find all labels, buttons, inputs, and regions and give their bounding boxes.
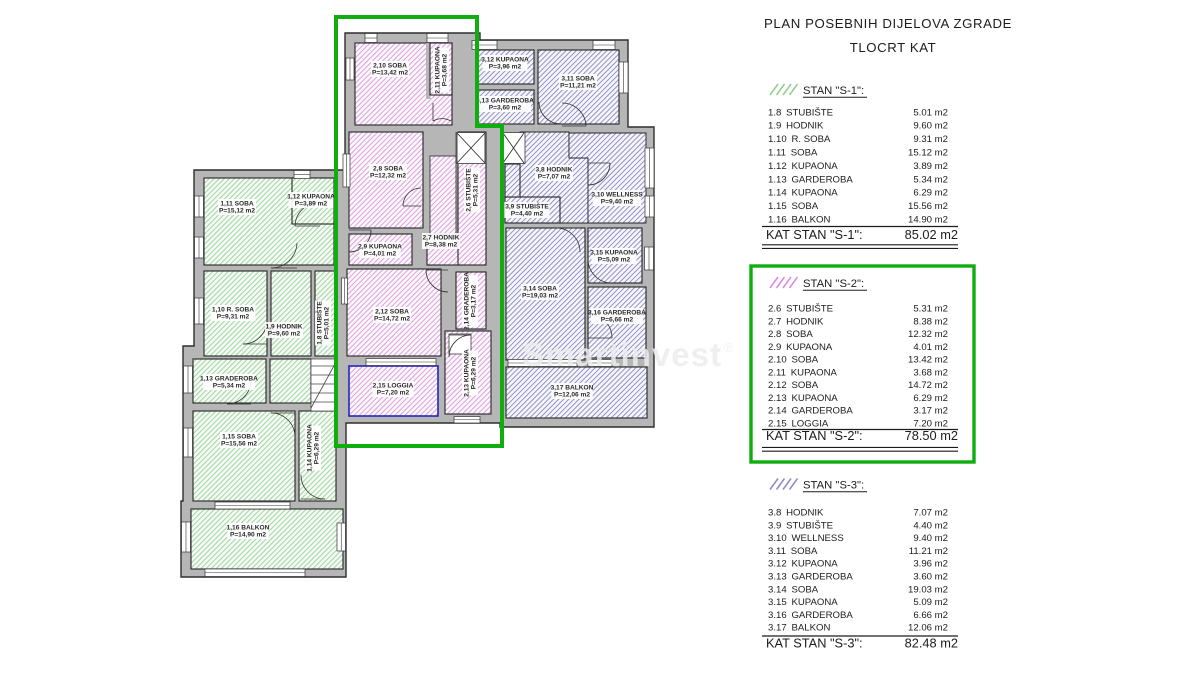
- svg-text:5.01 m2: 5.01 m2: [913, 107, 948, 118]
- svg-text:P=3,17 m2: P=3,17 m2: [471, 284, 478, 317]
- svg-text:11.21 m2: 11.21 m2: [909, 546, 948, 557]
- svg-text:2.7 HODNIK: 2.7 HODNIK: [768, 316, 824, 327]
- svg-text:2.9 KUPAONA: 2.9 KUPAONA: [768, 342, 833, 353]
- svg-text:P=12,32 m2: P=12,32 m2: [370, 173, 406, 180]
- svg-text:3,9 STUBIŠTE: 3,9 STUBIŠTE: [505, 201, 549, 210]
- svg-text:13.42 m2: 13.42 m2: [908, 355, 948, 366]
- svg-text:1,11 SOBA: 1,11 SOBA: [220, 200, 254, 207]
- svg-text:1.11 SOBA: 1.11 SOBA: [768, 148, 818, 159]
- svg-text:3,15 KUPAONA: 3,15 KUPAONA: [590, 249, 638, 256]
- svg-text:STAN "S-3":: STAN "S-3":: [803, 480, 864, 492]
- svg-text:P=3,68 m2: P=3,68 m2: [442, 53, 449, 86]
- svg-text:3.10 WELLNESS: 3.10 WELLNESS: [768, 533, 844, 544]
- svg-text:2,11 KUPAONA: 2,11 KUPAONA: [434, 46, 441, 93]
- svg-text:P=5,09 m2: P=5,09 m2: [598, 257, 631, 264]
- svg-text:9.60 m2: 9.60 m2: [913, 121, 948, 132]
- svg-text:5.09 m2: 5.09 m2: [913, 597, 948, 608]
- svg-text:12.32 m2: 12.32 m2: [908, 329, 948, 340]
- svg-text:4.40 m2: 4.40 m2: [913, 520, 948, 531]
- svg-text:7.07 m2: 7.07 m2: [913, 508, 948, 519]
- svg-text:3,13 GARDEROBA: 3,13 GARDEROBA: [476, 97, 534, 104]
- svg-text:6.66 m2: 6.66 m2: [913, 610, 948, 621]
- svg-text:2,10 SOBA: 2,10 SOBA: [373, 62, 407, 69]
- svg-text:4.01 m2: 4.01 m2: [913, 342, 948, 353]
- svg-text:1,10 R. SOBA: 1,10 R. SOBA: [212, 306, 254, 313]
- svg-text:78.50 m2: 78.50 m2: [905, 428, 958, 443]
- svg-text:2.11 KUPAONA: 2.11 KUPAONA: [768, 367, 838, 378]
- svg-text:2,8 SOBA: 2,8 SOBA: [373, 165, 403, 172]
- svg-text:3.13 GARDEROBA: 3.13 GARDEROBA: [768, 572, 853, 583]
- svg-text:P=5,31 m2: P=5,31 m2: [473, 173, 480, 206]
- svg-text:STAN "S-1":: STAN "S-1":: [803, 85, 864, 97]
- svg-text:P=3,96 m2: P=3,96 m2: [489, 64, 522, 71]
- svg-text:1.8 STUBIŠTE: 1.8 STUBIŠTE: [768, 107, 833, 118]
- svg-text:2.8 SOBA: 2.8 SOBA: [768, 329, 813, 340]
- svg-text:P=3,60 m2: P=3,60 m2: [489, 105, 522, 112]
- svg-text:PLAN POSEBNIH DIJELOVA ZGRADE: PLAN POSEBNIH DIJELOVA ZGRADE: [764, 16, 1012, 31]
- svg-text:1.15 SOBA: 1.15 SOBA: [768, 201, 819, 212]
- svg-text:1.12 KUPAONA: 1.12 KUPAONA: [768, 161, 838, 172]
- svg-text:1,12 KUPAONA: 1,12 KUPAONA: [287, 193, 335, 200]
- svg-text:9.31 m2: 9.31 m2: [913, 134, 948, 145]
- svg-text:9.40 m2: 9.40 m2: [913, 533, 948, 544]
- svg-text:3,17 BALKON: 3,17 BALKON: [551, 384, 594, 391]
- svg-text:1.10 R. SOBA: 1.10 R. SOBA: [768, 134, 831, 145]
- svg-text:P=11,21 m2: P=11,21 m2: [560, 83, 596, 90]
- svg-text:2,14 GRADEROBA: 2,14 GRADEROBA: [463, 272, 470, 330]
- svg-text:P=15,12 m2: P=15,12 m2: [219, 208, 255, 215]
- svg-text:P=9,31 m2: P=9,31 m2: [217, 314, 250, 321]
- svg-text:P=7,20 m2: P=7,20 m2: [377, 390, 410, 397]
- svg-text:P=12,06 m2: P=12,06 m2: [554, 392, 590, 399]
- svg-text:2,6 STUBIŠTE: 2,6 STUBIŠTE: [463, 168, 472, 212]
- svg-text:P=15,56 m2: P=15,56 m2: [221, 441, 257, 448]
- svg-text:2,7 HODNIK: 2,7 HODNIK: [422, 234, 459, 241]
- svg-text:3.14 SOBA: 3.14 SOBA: [768, 584, 819, 595]
- svg-text:3,11 SOBA: 3,11 SOBA: [561, 75, 595, 82]
- svg-text:3,12 KUPAONA: 3,12 KUPAONA: [481, 56, 529, 63]
- svg-text:®: ®: [724, 340, 734, 355]
- svg-text:8.38 m2: 8.38 m2: [913, 316, 948, 327]
- svg-text:3.89 m2: 3.89 m2: [913, 161, 948, 172]
- svg-text:1.16 BALKON: 1.16 BALKON: [768, 215, 830, 226]
- svg-text:P=7,07 m2: P=7,07 m2: [538, 174, 571, 181]
- svg-text:6.29 m2: 6.29 m2: [913, 188, 948, 199]
- svg-text:85.02 m2: 85.02 m2: [905, 227, 958, 242]
- svg-text:12.06 m2: 12.06 m2: [908, 623, 948, 634]
- svg-text:2,9 KUPAONA: 2,9 KUPAONA: [358, 243, 402, 250]
- svg-text:3.17 m2: 3.17 m2: [913, 406, 948, 417]
- svg-text:2,12 SOBA: 2,12 SOBA: [375, 308, 409, 315]
- svg-text:2.12 SOBA: 2.12 SOBA: [768, 380, 819, 391]
- svg-text:19.03 m2: 19.03 m2: [908, 584, 948, 595]
- svg-text:P=13,42 m2: P=13,42 m2: [372, 70, 408, 77]
- svg-text:P=9,40 m2: P=9,40 m2: [601, 199, 634, 206]
- svg-text:82.48 m2: 82.48 m2: [905, 636, 958, 651]
- svg-text:1,13 GRADEROBA: 1,13 GRADEROBA: [200, 375, 258, 382]
- svg-text:2.10 SOBA: 2.10 SOBA: [768, 355, 819, 366]
- svg-text:2,13 KUPAONA: 2,13 KUPAONA: [463, 349, 470, 397]
- svg-text:P=6,66 m2: P=6,66 m2: [601, 317, 634, 324]
- svg-text:1,9 HODNIK: 1,9 HODNIK: [265, 323, 302, 330]
- svg-text:15.12 m2: 15.12 m2: [908, 148, 948, 159]
- svg-text:3.9 STUBIŠTE: 3.9 STUBIŠTE: [768, 520, 833, 531]
- svg-text:3.60 m2: 3.60 m2: [913, 572, 948, 583]
- svg-text:P=5,34 m2: P=5,34 m2: [213, 383, 246, 390]
- svg-text:P=4,01 m2: P=4,01 m2: [364, 251, 397, 258]
- svg-text:3,8 HODNIK: 3,8 HODNIK: [535, 166, 572, 173]
- svg-text:TLOCRT KAT: TLOCRT KAT: [850, 40, 937, 55]
- svg-text:3.16 GARDEROBA: 3.16 GARDEROBA: [768, 610, 853, 621]
- svg-text:2.6 STUBIŠTE: 2.6 STUBIŠTE: [768, 304, 833, 315]
- svg-text:KAT STAN "S-1":: KAT STAN "S-1":: [766, 227, 863, 242]
- svg-text:3,10 WELLNESS: 3,10 WELLNESS: [591, 191, 643, 198]
- svg-text:3,16 GARDEROBA: 3,16 GARDEROBA: [588, 309, 646, 316]
- svg-text:3.68 m2: 3.68 m2: [913, 367, 948, 378]
- svg-text:1,8 STUBIŠTE: 1,8 STUBIŠTE: [314, 301, 323, 345]
- svg-text:3.15 KUPAONA: 3.15 KUPAONA: [768, 597, 838, 608]
- svg-text:5.31 m2: 5.31 m2: [913, 304, 948, 315]
- svg-text:3.96 m2: 3.96 m2: [913, 559, 948, 570]
- svg-text:P=3,89 m2: P=3,89 m2: [295, 201, 328, 208]
- svg-text:2.13 KUPAONA: 2.13 KUPAONA: [768, 393, 838, 404]
- svg-text:KAT STAN "S-2":: KAT STAN "S-2":: [766, 428, 863, 443]
- svg-text:Smartinvest: Smartinvest: [522, 336, 722, 373]
- svg-text:15.56 m2: 15.56 m2: [908, 201, 948, 212]
- svg-text:2,15 LOGGIA: 2,15 LOGGIA: [373, 382, 414, 389]
- svg-text:STAN "S-2":: STAN "S-2":: [803, 278, 864, 290]
- svg-text:1,15 SOBA: 1,15 SOBA: [222, 433, 256, 440]
- svg-text:6.29 m2: 6.29 m2: [913, 393, 948, 404]
- svg-text:P=9,60 m2: P=9,60 m2: [268, 331, 301, 338]
- svg-text:P=5,01 m2: P=5,01 m2: [324, 306, 331, 339]
- svg-text:3.17 BALKON: 3.17 BALKON: [768, 623, 830, 634]
- svg-text:14.90 m2: 14.90 m2: [908, 215, 948, 226]
- svg-text:3.8 HODNIK: 3.8 HODNIK: [768, 508, 824, 519]
- svg-text:P=6,29 m2: P=6,29 m2: [471, 356, 478, 389]
- svg-text:P=8,38 m2: P=8,38 m2: [425, 242, 458, 249]
- svg-text:P=14,72 m2: P=14,72 m2: [374, 316, 410, 323]
- svg-text:14.72 m2: 14.72 m2: [908, 380, 948, 391]
- svg-text:P=19,03 m2: P=19,03 m2: [522, 293, 558, 300]
- svg-text:3.12 KUPAONA: 3.12 KUPAONA: [768, 559, 838, 570]
- svg-text:2.14 GARDEROBA: 2.14 GARDEROBA: [768, 406, 853, 417]
- svg-text:1.14 KUPAONA: 1.14 KUPAONA: [768, 188, 838, 199]
- svg-text:KAT STAN "S-3":: KAT STAN "S-3":: [766, 636, 863, 651]
- svg-text:5.34 m2: 5.34 m2: [913, 174, 948, 185]
- svg-text:P=6,29 m2: P=6,29 m2: [314, 431, 321, 464]
- svg-text:P=14,90 m2: P=14,90 m2: [230, 532, 266, 539]
- svg-text:3,14 SOBA: 3,14 SOBA: [523, 285, 557, 292]
- svg-text:P=4,40 m2: P=4,40 m2: [511, 211, 544, 218]
- svg-text:3.11 SOBA: 3.11 SOBA: [768, 546, 818, 557]
- svg-text:1,16 BALKON: 1,16 BALKON: [227, 524, 270, 531]
- svg-text:1,14 KUPAONA: 1,14 KUPAONA: [306, 424, 313, 472]
- svg-text:1.9 HODNIK: 1.9 HODNIK: [768, 121, 824, 132]
- svg-text:1.13 GARDEROBA: 1.13 GARDEROBA: [768, 174, 853, 185]
